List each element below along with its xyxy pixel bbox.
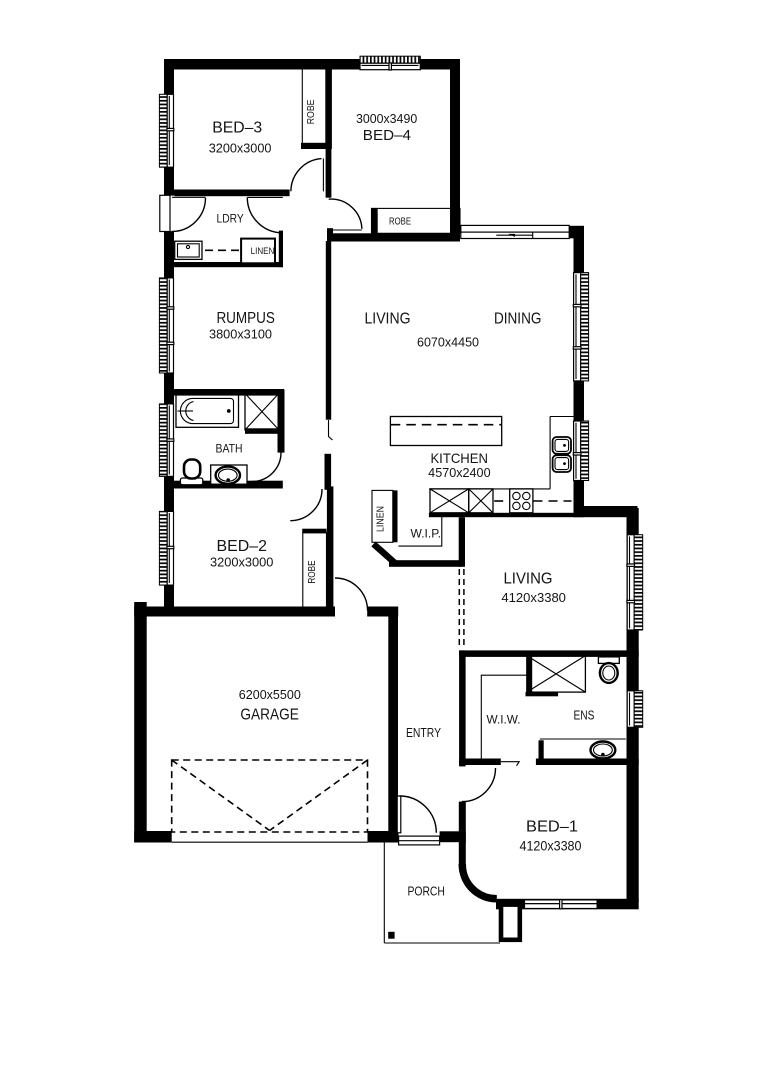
svg-text:LIVING: LIVING bbox=[365, 311, 411, 328]
svg-text:BED–4: BED–4 bbox=[363, 128, 411, 144]
svg-text:BATH: BATH bbox=[216, 442, 243, 456]
svg-text:4570x2400: 4570x2400 bbox=[428, 466, 490, 480]
svg-text:GARAGE: GARAGE bbox=[240, 706, 298, 723]
svg-text:RUMPUS: RUMPUS bbox=[216, 310, 275, 327]
svg-text:BED–3: BED–3 bbox=[212, 120, 262, 137]
svg-text:4120x3380: 4120x3380 bbox=[501, 590, 566, 605]
svg-text:3200x3000: 3200x3000 bbox=[209, 141, 272, 156]
svg-text:3800x3100: 3800x3100 bbox=[209, 327, 272, 342]
svg-text:ROBE: ROBE bbox=[307, 560, 318, 584]
svg-text:KITCHEN: KITCHEN bbox=[430, 450, 488, 466]
svg-text:LDRY: LDRY bbox=[217, 214, 244, 226]
svg-text:ROBE: ROBE bbox=[306, 99, 317, 124]
svg-text:LINEN: LINEN bbox=[376, 506, 387, 532]
svg-text:ENTRY: ENTRY bbox=[406, 726, 442, 740]
svg-text:4120x3380: 4120x3380 bbox=[520, 838, 582, 853]
svg-text:ROBE: ROBE bbox=[389, 217, 411, 228]
svg-text:PORCH: PORCH bbox=[407, 885, 445, 899]
svg-text:3200x3000: 3200x3000 bbox=[210, 555, 274, 570]
svg-text:W.I.P.: W.I.P. bbox=[411, 527, 442, 541]
svg-text:3000x3490: 3000x3490 bbox=[356, 112, 417, 126]
svg-text:ENS: ENS bbox=[574, 709, 595, 723]
svg-text:DINING: DINING bbox=[494, 311, 542, 328]
svg-text:LIVING: LIVING bbox=[504, 571, 553, 588]
svg-text:BED–1: BED–1 bbox=[526, 819, 578, 836]
svg-text:6070x4450: 6070x4450 bbox=[417, 335, 479, 350]
svg-text:BED–2: BED–2 bbox=[216, 538, 267, 555]
svg-text:6200x5500: 6200x5500 bbox=[239, 687, 301, 702]
svg-text:W.I.W.: W.I.W. bbox=[487, 713, 521, 727]
svg-text:LINEN: LINEN bbox=[251, 246, 275, 256]
